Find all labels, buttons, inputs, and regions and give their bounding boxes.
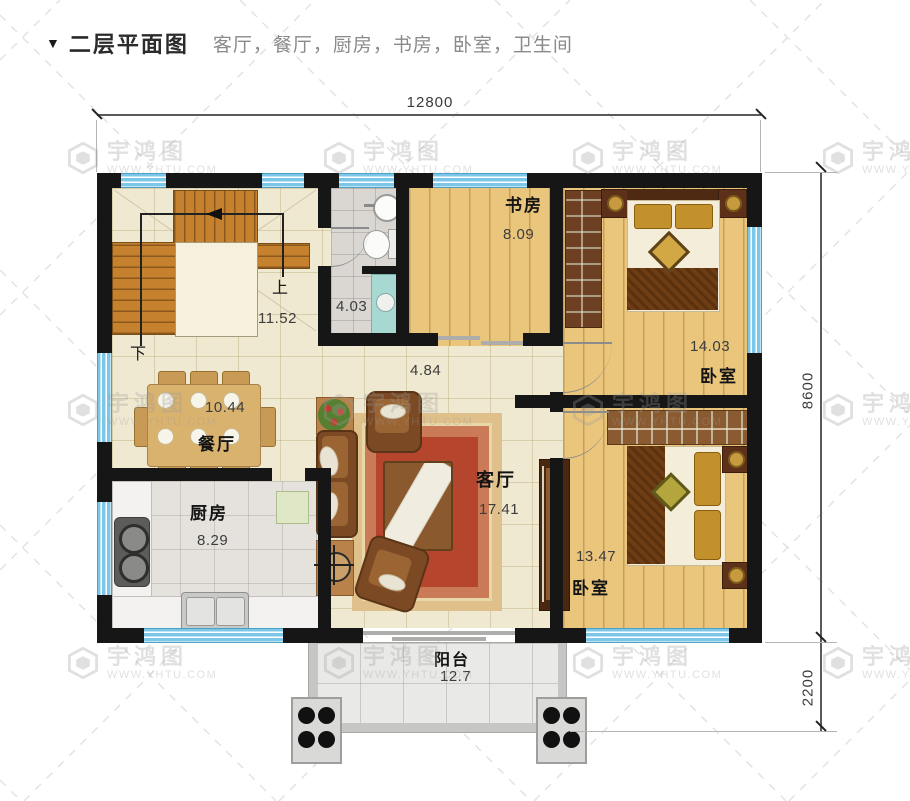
compass-cross-v [333, 545, 335, 585]
study-room-label: 书房 [505, 191, 543, 216]
study-sliding-door [481, 341, 523, 345]
window [144, 628, 283, 643]
extension-line [570, 731, 837, 732]
watermark-brand: 宇鸿图 [862, 392, 910, 416]
stair-path-line-right [282, 213, 284, 277]
yhtu-logo-icon [322, 647, 356, 679]
dimension-top-width: 12800 [395, 94, 465, 111]
watermark: 宇鸿图WWW.YHTU.COM [571, 645, 722, 681]
watermark: 宇鸿图WWW.YHTU.COM [66, 392, 217, 428]
yhtu-logo-icon [571, 647, 605, 679]
column-rebar [543, 707, 560, 724]
balcony-column [291, 697, 342, 764]
yhtu-logo-icon [322, 142, 356, 174]
wall-bedrooms-west [550, 458, 563, 643]
pillow [675, 204, 713, 229]
bedroom-top-area: 14.03 [690, 338, 730, 355]
watermark: 宇鸿图WWW.YHTU.COM [66, 645, 217, 681]
watermark-url: WWW.YHTU.COM [612, 164, 722, 176]
watermark: 宇鸿图WWW.YHTU.COM [571, 392, 722, 428]
watermark: 宇鸿图WWW.YHTU.COM [322, 392, 473, 428]
stair-up-label: 上 [272, 274, 289, 298]
wall-bottom-seg [97, 628, 144, 643]
stove-burner [119, 553, 149, 583]
page-title: 二层平面图 [69, 27, 189, 59]
wall-kitchen-north [112, 468, 272, 481]
yhtu-logo-icon [571, 142, 605, 174]
column-rebar [318, 707, 335, 724]
yhtu-logo-icon [66, 647, 100, 679]
stove-burner [119, 524, 149, 554]
stair-void [175, 242, 258, 337]
living-area: 17.41 [479, 501, 519, 518]
watermark: 宇鸿图WWW.YHTU.COM [821, 392, 910, 428]
watermark-url: WWW.YHTU.COM [363, 164, 473, 176]
watermark-brand: 宇鸿图 [363, 392, 473, 416]
watermark-url: WWW.YHTU.COM [862, 416, 910, 428]
yhtu-logo-icon [322, 394, 356, 426]
table-runner [383, 461, 453, 551]
dimension-right-height: 8600 [800, 365, 817, 417]
watermark-url: WWW.YHTU.COM [862, 164, 910, 176]
sink-basin [216, 597, 245, 626]
stair-flight-left [112, 242, 177, 335]
tv-highlight [542, 466, 544, 602]
wall-kitchen-east [318, 468, 331, 628]
watermark-url: WWW.YHTU.COM [612, 416, 722, 428]
watermark-url: WWW.YHTU.COM [612, 669, 722, 681]
nightstand-knob [607, 195, 624, 212]
column-rebar [543, 731, 560, 748]
extension-line [760, 120, 761, 172]
yhtu-logo-icon [821, 142, 855, 174]
study-sliding-door [438, 336, 480, 340]
wall-bedrooms-west [550, 188, 563, 343]
watermark-url: WWW.YHTU.COM [363, 416, 473, 428]
column-rebar [298, 707, 315, 724]
wall-bottom-seg [729, 628, 762, 643]
dimension-line-top [97, 114, 761, 116]
pillow [634, 204, 672, 229]
bed-blanket [627, 268, 718, 310]
watermark-brand: 宇鸿图 [363, 645, 473, 669]
stairwell-area: 11.52 [258, 310, 297, 327]
watermark: 宇鸿图WWW.YHTU.COM [821, 140, 910, 176]
window [747, 227, 762, 353]
window [586, 628, 729, 643]
dining-room-label: 餐厅 [198, 430, 236, 455]
shower-drain [376, 293, 395, 312]
study-area: 8.09 [503, 226, 534, 243]
header: ▼ 二层平面图 客厅，餐厅，厨房，书房，卧室，卫生间 [46, 27, 573, 59]
watermark: 宇鸿图WWW.YHTU.COM [821, 645, 910, 681]
coffee-table [383, 461, 453, 551]
bathroom-area: 4.03 [336, 298, 367, 315]
watermark-brand: 宇鸿图 [612, 392, 722, 416]
bed-blanket [627, 446, 665, 564]
watermark-brand: 宇鸿图 [862, 140, 910, 164]
dining-chair [259, 407, 276, 447]
column-rebar [318, 731, 335, 748]
hallway-area: 4.84 [410, 362, 441, 379]
living-room-label: 客厅 [476, 466, 516, 492]
column-rebar [563, 707, 580, 724]
yhtu-logo-icon [66, 142, 100, 174]
yhtu-logo-icon [66, 394, 100, 426]
watermark-brand: 宇鸿图 [363, 140, 473, 164]
watermark-brand: 宇鸿图 [862, 645, 910, 669]
wall-bottom-seg [283, 628, 363, 643]
pillow [694, 510, 721, 560]
stair-path-line-left [140, 213, 142, 346]
bathroom-door-leaf [331, 227, 369, 229]
wall-bath-study [396, 188, 409, 346]
watermark-url: WWW.YHTU.COM [862, 669, 910, 681]
yhtu-logo-icon [821, 394, 855, 426]
watermark: 宇鸿图WWW.YHTU.COM [322, 645, 473, 681]
nightstand-knob [725, 195, 742, 212]
watermark-brand: 宇鸿图 [107, 645, 217, 669]
plate [157, 428, 174, 445]
extension-line [765, 642, 837, 643]
bed-headboard [627, 189, 718, 200]
pillow [694, 452, 721, 506]
wall-stair-bath [318, 188, 331, 228]
balcony-sliding-door [363, 631, 515, 635]
balcony-sliding-door [392, 637, 486, 641]
watermark-brand: 宇鸿图 [107, 140, 217, 164]
floor-plan-canvas: ▼ 二层平面图 客厅，餐厅，厨房，书房，卧室，卫生间 下 上 11.52 10.… [0, 0, 910, 801]
watermark-brand: 宇鸿图 [107, 392, 217, 416]
stair-arrow-icon [206, 208, 222, 220]
bathroom-sink-handle [364, 204, 375, 207]
watermark: 宇鸿图WWW.YHTU.COM [571, 140, 722, 176]
dimension-balcony-depth: 2200 [800, 662, 817, 714]
kitchen-area: 8.29 [197, 532, 228, 549]
watermark-brand: 宇鸿图 [612, 140, 722, 164]
watermark-url: WWW.YHTU.COM [107, 416, 217, 428]
sink-basin [186, 597, 215, 626]
wall-bath-divider [362, 266, 396, 274]
page-subtitle: 客厅，餐厅，厨房，书房，卧室，卫生间 [213, 30, 573, 57]
triangle-marker-icon: ▼ [46, 35, 60, 51]
yhtu-logo-icon [571, 394, 605, 426]
wall-study-south [318, 333, 438, 346]
watermark-url: WWW.YHTU.COM [363, 669, 473, 681]
window [262, 173, 304, 188]
watermark: 宇鸿图WWW.YHTU.COM [66, 140, 217, 176]
stair-down-label: 下 [130, 340, 147, 364]
bedroom-bottom-area: 13.47 [576, 548, 616, 565]
fridge [276, 491, 309, 524]
watermark: 宇鸿图WWW.YHTU.COM [322, 140, 473, 176]
column-rebar [298, 731, 315, 748]
bedroom-bottom-label: 卧室 [572, 574, 610, 599]
wardrobe-bedroom-top [565, 190, 602, 328]
nightstand-knob [728, 451, 745, 468]
yhtu-logo-icon [821, 647, 855, 679]
nightstand-knob [728, 567, 745, 584]
watermark-url: WWW.YHTU.COM [107, 164, 217, 176]
column-rebar [563, 731, 580, 748]
kitchen-room-label: 厨房 [190, 499, 228, 524]
bedroom-top-door-leaf [563, 342, 612, 344]
bedroom-top-label: 卧室 [700, 362, 738, 387]
watermark-brand: 宇鸿图 [612, 645, 722, 669]
watermark-url: WWW.YHTU.COM [107, 669, 217, 681]
window [97, 502, 112, 595]
